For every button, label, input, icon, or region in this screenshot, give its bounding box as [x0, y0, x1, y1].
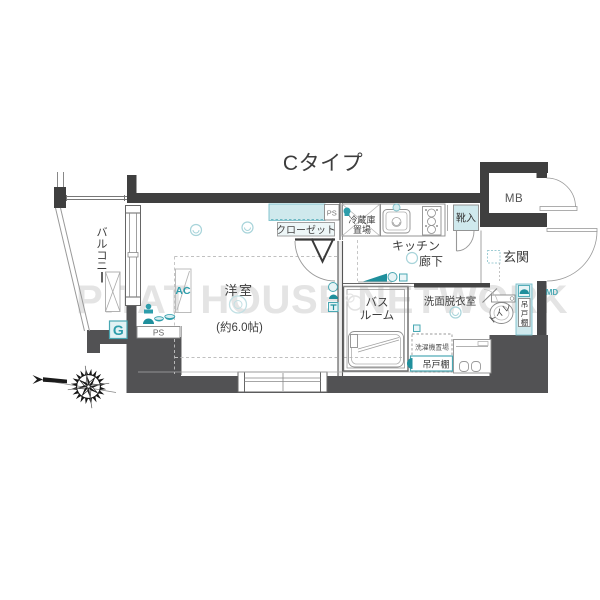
svg-text:冷蔵庫: 冷蔵庫: [348, 214, 375, 225]
svg-text:MB: MB: [505, 193, 523, 205]
svg-text:ニ: ニ: [97, 261, 108, 273]
svg-text:(約6.0帖): (約6.0帖): [216, 320, 263, 334]
svg-text:PS: PS: [153, 328, 165, 338]
svg-text:戸: 戸: [521, 309, 529, 318]
svg-text:置場: 置場: [353, 224, 371, 235]
svg-text:ル: ル: [97, 239, 108, 251]
svg-text:キッチン: キッチン: [392, 239, 440, 253]
svg-text:AC: AC: [175, 285, 191, 297]
svg-text:バス: バス: [366, 296, 389, 309]
svg-text:靴入: 靴入: [456, 212, 476, 225]
svg-text:G: G: [113, 322, 124, 338]
svg-text:Cタイプ: Cタイプ: [283, 152, 363, 175]
svg-text:クローゼット: クローゼット: [276, 225, 336, 237]
svg-text:吊: 吊: [521, 300, 529, 309]
svg-text:玄関: 玄関: [503, 250, 529, 265]
svg-text:ルーム: ルーム: [360, 309, 394, 322]
svg-text:バ: バ: [97, 226, 108, 239]
svg-text:洗面脱衣室: 洗面脱衣室: [424, 295, 477, 308]
svg-text:洗濯機置場: 洗濯機置場: [415, 343, 449, 352]
svg-text:PS: PS: [327, 209, 337, 218]
svg-text:吊戸棚: 吊戸棚: [422, 359, 449, 370]
svg-text:棚: 棚: [521, 317, 529, 327]
svg-text:MD: MD: [546, 288, 559, 297]
svg-text:廊下: 廊下: [419, 254, 443, 269]
